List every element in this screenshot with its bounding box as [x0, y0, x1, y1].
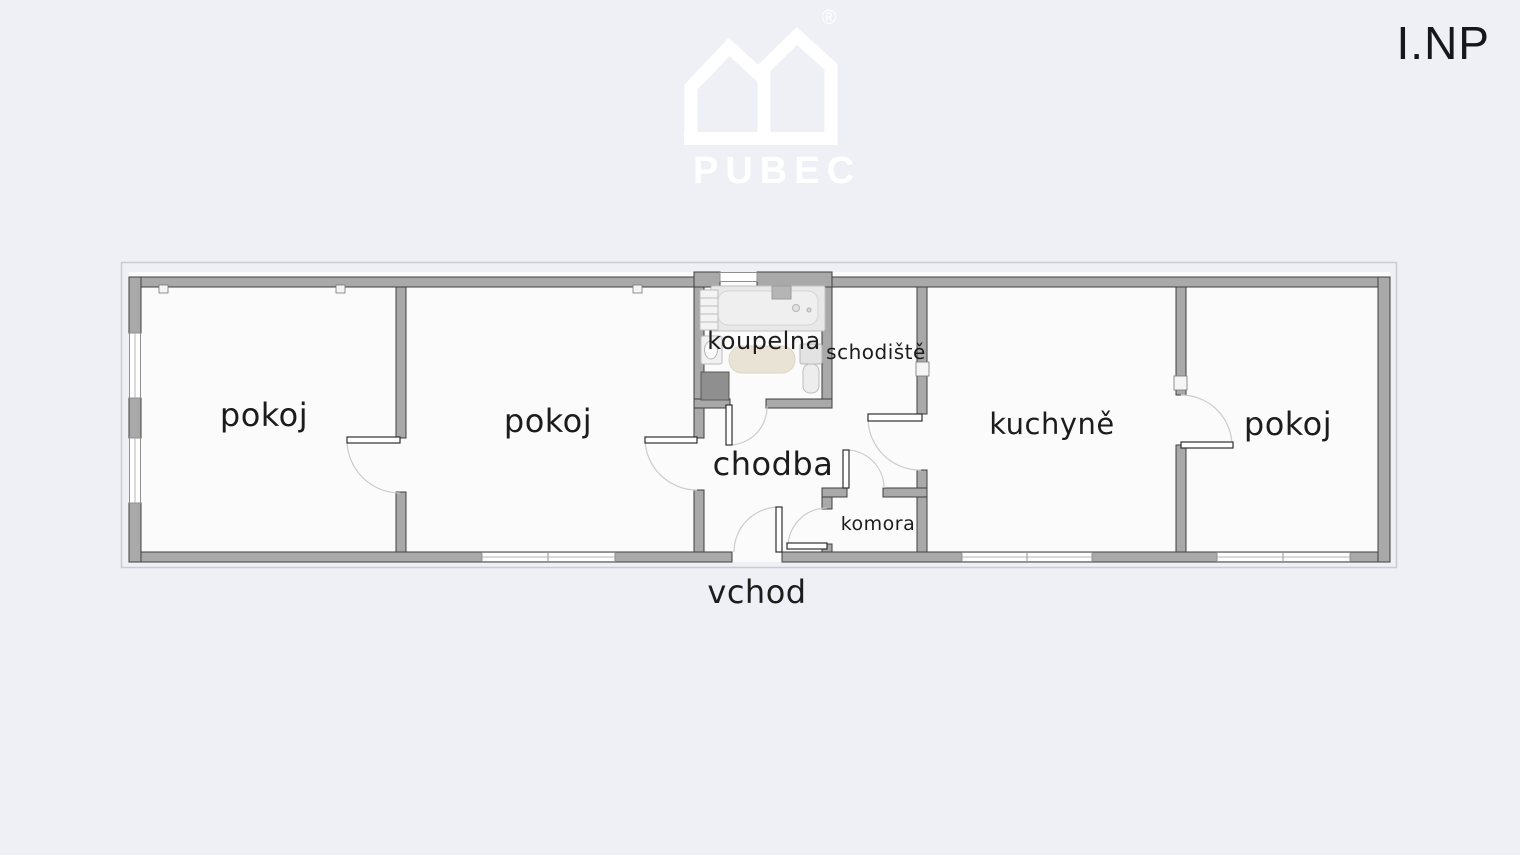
wall-room1-room2-upper [396, 287, 406, 438]
wall-kitchen-room3-lower [1176, 445, 1186, 552]
room-label-komora: komora [841, 513, 916, 535]
room-label-kuchyne: kuchyně [989, 407, 1115, 441]
outer-wall-top-right-run [830, 277, 1390, 287]
outer-wall-left-seg1 [129, 277, 141, 333]
room-label-pokoj-1: pokoj [220, 396, 308, 434]
pubec-brand-text: PUBEC [686, 150, 838, 193]
door-leaf-room1 [347, 437, 400, 443]
pubec-registered-icon: ® [822, 7, 837, 29]
flue-mark-staircase-wall [916, 362, 929, 376]
wall-joint-tick-3 [633, 285, 642, 293]
flue-mark-kitchen-wall [1174, 376, 1187, 390]
washing-machine [701, 372, 729, 400]
pubec-logo-small-house [691, 47, 764, 145]
outer-wall-right [1378, 277, 1390, 562]
outer-wall-left-seg2 [129, 398, 141, 438]
pubec-logo-base-bar [684, 132, 837, 145]
bathtub-inner [718, 291, 818, 325]
wall-joint-tick-2 [336, 285, 345, 293]
bathtub-drain-icon [793, 305, 800, 312]
wall-bath-bottom-right [766, 399, 832, 408]
towel-ladder [700, 290, 718, 330]
outer-wall-bottom-left-run [129, 552, 732, 562]
wall-joint-tick-1 [159, 285, 168, 293]
wall-room2-hall-lower [694, 490, 704, 552]
wall-room1-room2-lower [396, 492, 406, 552]
room-label-schodiste: schodiště [826, 340, 926, 364]
door-leaf-kitchen [868, 414, 922, 421]
bathroom-bump-wall-left [694, 272, 720, 287]
floor-title: I.NP [1397, 16, 1490, 70]
shower-panel [772, 286, 791, 299]
door-leaf-pantry-top [843, 450, 849, 488]
pubec-logo-large-house [764, 36, 831, 145]
pubec-logo [684, 36, 837, 145]
wall-pantry-left-upper [822, 497, 832, 509]
floor-plan-page: ® [0, 0, 1520, 855]
entrance-label-vchod: vchod [707, 573, 806, 611]
wall-staircase-kitchen-lower [917, 470, 927, 552]
room-label-koupelna: koupelna [707, 327, 821, 355]
wall-pantry-top-left [822, 488, 847, 497]
bathroom-bump-wall-right [757, 272, 832, 287]
outer-wall-left-seg3 [129, 503, 141, 562]
bathtub-faucet-icon [807, 308, 811, 312]
door-leaf-room2 [645, 437, 697, 443]
room-label-pokoj-2: pokoj [504, 402, 592, 440]
door-leaf-room3 [1181, 442, 1233, 448]
door-leaf-pantry-side [787, 543, 827, 549]
door-leaf-bathroom [726, 405, 732, 445]
window-bathroom-top [720, 273, 757, 282]
outer-wall-top-left-run [129, 277, 696, 287]
wall-pantry-top-right [883, 488, 927, 497]
room-label-pokoj-3: pokoj [1244, 405, 1332, 443]
door-leaf-entrance [776, 507, 782, 552]
room-label-chodba: chodba [713, 445, 834, 483]
